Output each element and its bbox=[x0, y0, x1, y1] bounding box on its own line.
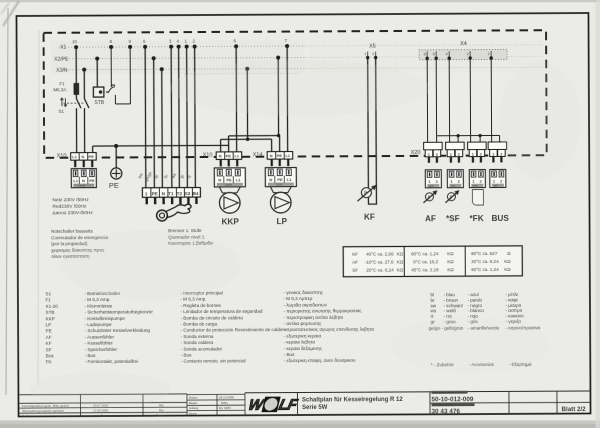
svg-text:- Bus: - Bus bbox=[181, 353, 192, 358]
svg-text:KΩ: KΩ bbox=[447, 251, 454, 256]
svg-text:- Ladepumpe: - Ladepumpe bbox=[85, 322, 113, 327]
svg-text:S3: S3 bbox=[185, 191, 191, 196]
svg-text:- Sonda caldera: - Sonda caldera bbox=[181, 340, 214, 345]
svg-text:M6,3A: M6,3A bbox=[53, 87, 66, 92]
svg-text:L1: L1 bbox=[236, 177, 241, 182]
svg-text:AF: AF bbox=[46, 335, 52, 340]
svg-text:2: 2 bbox=[372, 52, 374, 56]
svg-text:- Bus: - Bus bbox=[85, 353, 96, 358]
svg-text:SF: SF bbox=[46, 347, 52, 352]
svg-text:N: N bbox=[219, 153, 222, 158]
svg-text:- λωριδα ακροδεκτων: - λωριδα ακροδεκτων bbox=[283, 302, 327, 307]
svg-text:Notschalter bauseits: Notschalter bauseits bbox=[51, 229, 93, 234]
svg-text:Schaltplan für Kesselregelung: Schaltplan für Kesselregelung R 12 bbox=[302, 397, 403, 404]
svg-text:STB: STB bbox=[94, 100, 104, 106]
svg-text:30 43 476: 30 43 476 bbox=[432, 408, 461, 415]
svg-text:- Contacto remoto, sin potenci: - Contacto remoto, sin potencial bbox=[181, 358, 246, 363]
svg-text:X5: X5 bbox=[369, 44, 376, 50]
svg-text:- ασπρο: - ασπρο bbox=[505, 308, 522, 313]
svg-text:FK: FK bbox=[46, 359, 53, 364]
svg-text:T2: T2 bbox=[177, 191, 183, 196]
svg-text:-10°C ca. 27,6: -10°C ca. 27,6 bbox=[365, 260, 394, 265]
svg-text:- αντλια φορτωσης: - αντλια φορτωσης bbox=[284, 321, 323, 326]
svg-text:X4: X4 bbox=[460, 41, 467, 47]
svg-text:Sthm: Sthm bbox=[221, 401, 229, 405]
svg-text:AF: AF bbox=[352, 260, 358, 265]
svg-text:AF: AF bbox=[425, 214, 436, 223]
svg-text:LP: LP bbox=[46, 322, 52, 327]
svg-text:- pardo: - pardo bbox=[467, 297, 482, 302]
svg-text:grb: grb bbox=[494, 184, 499, 188]
svg-text:230V: 230V bbox=[276, 182, 283, 186]
svg-text:Δικτυο 230V-/50Hz: Δικτυο 230V-/50Hz bbox=[52, 210, 93, 216]
svg-text:- blanco: - blanco bbox=[467, 308, 484, 313]
svg-text:1: 1 bbox=[488, 52, 490, 56]
svg-text:Teil- Materialnummer: Teil- Materialnummer bbox=[432, 404, 456, 407]
svg-text:20°C ca. 6,24: 20°C ca. 6,24 bbox=[471, 259, 499, 264]
svg-text:L1: L1 bbox=[72, 154, 77, 159]
svg-text:X10: X10 bbox=[57, 153, 67, 159]
svg-text:- negro: - negro bbox=[467, 303, 482, 308]
svg-text:- Fernkontakt, potentialfrei: - Fernkontakt, potentialfrei bbox=[85, 359, 138, 364]
svg-text:KF: KF bbox=[364, 213, 375, 222]
svg-text:- Bus: - Bus bbox=[284, 352, 295, 357]
svg-text:L1: L1 bbox=[234, 153, 239, 158]
svg-text:- Sonda externa: - Sonda externa bbox=[181, 334, 214, 339]
svg-text:Datum: Datum bbox=[101, 413, 111, 417]
svg-text:26.10.2006: 26.10.2006 bbox=[219, 395, 234, 399]
svg-text:B4: B4 bbox=[193, 191, 199, 196]
svg-text:S1: S1 bbox=[45, 291, 51, 296]
svg-text:PE: PE bbox=[277, 153, 283, 158]
svg-text:PE: PE bbox=[88, 154, 94, 159]
svg-text:- Klemmleiste: - Klemmleiste bbox=[84, 303, 112, 308]
svg-text:- Aussenfühler: - Aussenfühler bbox=[85, 334, 115, 339]
svg-text:X10: X10 bbox=[203, 152, 213, 158]
svg-text:- Conductor de protección Reve: - Conductor de protección Revestimiento … bbox=[181, 327, 287, 333]
svg-text:0°C ca. 16,3: 0°C ca. 16,3 bbox=[413, 259, 438, 264]
svg-text:KΩ: KΩ bbox=[397, 267, 404, 272]
svg-text:Anläng: Anläng bbox=[189, 406, 199, 410]
svg-text:PE: PE bbox=[46, 329, 52, 334]
svg-text:- blau: - blau bbox=[443, 292, 455, 297]
svg-text:PE: PE bbox=[226, 153, 232, 158]
svg-text:KΩ: KΩ bbox=[397, 251, 404, 256]
svg-text:KΩ: KΩ bbox=[447, 259, 454, 264]
svg-text:- schwarz: - schwarz bbox=[443, 303, 463, 308]
svg-text:F1: F1 bbox=[45, 298, 51, 303]
svg-text:20°C ca. 6,24: 20°C ca. 6,24 bbox=[366, 268, 394, 273]
svg-text:Norm: Norm bbox=[189, 411, 197, 415]
svg-text:L1: L1 bbox=[285, 153, 290, 158]
svg-text:- Kesselfühler: - Kesselfühler bbox=[85, 341, 114, 346]
svg-text:S1: S1 bbox=[58, 109, 64, 114]
svg-text:Zeichnungsnummer: Zeichnungsnummer bbox=[432, 391, 454, 394]
svg-text:weiß: weiß bbox=[79, 184, 86, 188]
svg-text:- Speicherfühler: - Speicherfühler bbox=[85, 347, 118, 352]
svg-text:80°C ca. 627: 80°C ca. 627 bbox=[471, 251, 498, 256]
svg-text:bl: bl bbox=[430, 292, 434, 297]
svg-text:N: N bbox=[82, 178, 85, 183]
svg-text:2: 2 bbox=[467, 52, 469, 56]
svg-text:sw: sw bbox=[430, 303, 436, 308]
svg-text:- περιοριστης ανωτατης θερμοκρ: - περιοριστης ανωτατης θερμοκρασιας bbox=[283, 308, 362, 313]
svg-text:- M 6,3 Amp.: - M 6,3 Amp. bbox=[180, 297, 206, 302]
svg-text:*SF: *SF bbox=[446, 214, 460, 223]
svg-text:Übersetzung todesch-serbisch: Übersetzung todesch-serbisch bbox=[22, 409, 64, 413]
svg-text:Bearb.: Bearb. bbox=[189, 401, 198, 405]
svg-text:PE: PE bbox=[109, 181, 119, 190]
svg-text:LP: LP bbox=[277, 217, 288, 226]
svg-text:*FK: *FK bbox=[470, 214, 484, 223]
svg-text:40°C ca. 2,66: 40°C ca. 2,66 bbox=[366, 252, 394, 257]
svg-text:- Regleta de bornes: - Regleta de bornes bbox=[180, 303, 221, 308]
svg-text:- μπλε: - μπλε bbox=[505, 292, 518, 297]
svg-text:- κοκκινο: - κοκκινο bbox=[506, 313, 525, 318]
svg-text:X2/PE: X2/PE bbox=[54, 57, 69, 63]
svg-text:KΩ: KΩ bbox=[397, 259, 404, 264]
svg-text:L1: L1 bbox=[73, 178, 78, 183]
svg-text:17.05.2001: 17.05.2001 bbox=[93, 409, 109, 413]
svg-text:- braun: - braun bbox=[443, 298, 458, 303]
svg-text:KF: KF bbox=[46, 341, 52, 346]
svg-text:blu: blu bbox=[451, 184, 455, 188]
svg-text:- προστατευτικος αγωγος επενδυ: - προστατευτικος αγωγος επενδυσης λεβητα bbox=[284, 327, 375, 332]
svg-text:45°C ca. 2,18: 45°C ca. 2,18 bbox=[411, 267, 439, 272]
svg-text:SF: SF bbox=[352, 268, 358, 273]
svg-text:1: 1 bbox=[364, 52, 366, 56]
svg-text:- weiß: - weiß bbox=[443, 308, 456, 313]
svg-text:N: N bbox=[218, 177, 221, 182]
svg-text:ws: ws bbox=[430, 308, 436, 313]
svg-text:gnb: gnb bbox=[429, 184, 434, 188]
svg-text:4: 4 bbox=[446, 52, 448, 56]
svg-text:N: N bbox=[269, 177, 272, 182]
svg-text:T1: T1 bbox=[168, 191, 174, 196]
svg-text:- Μ 6,3 Αμπερ: - Μ 6,3 Αμπερ bbox=[283, 296, 312, 301]
svg-text:X1: X1 bbox=[60, 45, 66, 51]
svg-text:KF: KF bbox=[352, 252, 358, 257]
svg-text:- μαυρο: - μαυρο bbox=[505, 303, 521, 308]
svg-text:PE: PE bbox=[277, 177, 283, 182]
svg-text:- Bomba de carga: - Bomba de carga bbox=[181, 321, 218, 326]
svg-text:6: 6 bbox=[424, 52, 426, 56]
svg-text:- Sonda acumulador: - Sonda acumulador bbox=[181, 346, 223, 351]
svg-text:- azul: - azul bbox=[467, 292, 478, 297]
svg-text:5: 5 bbox=[433, 52, 435, 56]
svg-text:- M 6,3 Amp.: - M 6,3 Amp. bbox=[84, 297, 110, 302]
svg-text:50-10-012-009: 50-10-012-009 bbox=[431, 396, 473, 403]
svg-text:- καφε: - καφε bbox=[505, 297, 518, 302]
svg-text:Serie 5W: Serie 5W bbox=[302, 405, 328, 411]
svg-text:br: br bbox=[430, 298, 435, 303]
svg-text:60°C ca. 1,24: 60°C ca. 1,24 bbox=[471, 267, 499, 272]
svg-text:L1: L1 bbox=[287, 177, 292, 182]
svg-text:PE: PE bbox=[89, 178, 95, 183]
svg-text:230V: 230V bbox=[225, 183, 232, 187]
svg-text:KKP: KKP bbox=[222, 217, 240, 226]
svg-text:- περιστροφικη αντλια λεβητα: - περιστροφικη αντλια λεβητα bbox=[284, 315, 344, 320]
svg-text:PE: PE bbox=[152, 191, 158, 196]
svg-text:KΩ: KΩ bbox=[504, 259, 511, 264]
svg-text:X1-20: X1-20 bbox=[45, 304, 58, 309]
svg-text:Red230V /50Hz: Red230V /50Hz bbox=[52, 204, 86, 210]
svg-text:Netz 230V /50Hz: Netz 230V /50Hz bbox=[52, 197, 89, 203]
svg-text:Datum: Datum bbox=[189, 396, 198, 400]
svg-text:10: 10 bbox=[72, 39, 77, 44]
svg-text:- κεραια λεβητα: - κεραια λεβητα bbox=[284, 340, 316, 345]
svg-text:X14: X14 bbox=[253, 152, 263, 158]
svg-text:X3/N: X3/N bbox=[56, 68, 68, 74]
svg-text:Bus: Bus bbox=[46, 353, 55, 358]
svg-text:EC 3283: EC 3283 bbox=[219, 406, 231, 410]
svg-text:Name: Name bbox=[156, 413, 165, 417]
svg-text:N: N bbox=[270, 153, 273, 158]
svg-text:- γενικος διακοπτης: - γενικος διακοπτης bbox=[283, 290, 323, 295]
svg-text:- Sicherheitstemperaturbegrenz: - Sicherheitstemperaturbegrenzer bbox=[84, 309, 153, 314]
svg-text:F1: F1 bbox=[59, 81, 65, 86]
svg-text:STB: STB bbox=[45, 310, 54, 315]
svg-text:- Schutzleiter Kesselverkleidu: - Schutzleiter Kesselverkleidung bbox=[85, 328, 151, 333]
svg-text:BUS: BUS bbox=[492, 214, 510, 223]
svg-text:KKP: KKP bbox=[46, 316, 55, 321]
svg-text:KΩ: KΩ bbox=[504, 267, 511, 272]
svg-text:Blatt 2/2: Blatt 2/2 bbox=[562, 406, 587, 413]
svg-text:- Bomba de circuito de caldera: - Bomba de circuito de caldera bbox=[181, 315, 244, 320]
svg-text:Hw: Hw bbox=[159, 408, 164, 412]
svg-text:Hw: Hw bbox=[159, 403, 164, 407]
svg-text:N: N bbox=[81, 154, 84, 159]
svg-text:KΩ: KΩ bbox=[447, 267, 454, 272]
svg-text:- Limitador de temperatura de: - Limitador de temperatura de seguridad bbox=[180, 309, 262, 314]
svg-text:60°C ca. 1,24: 60°C ca. 1,24 bbox=[411, 251, 439, 256]
svg-text:X20: X20 bbox=[411, 150, 421, 156]
svg-text:- Kesselkreispumpe: - Kesselkreispumpe bbox=[85, 316, 126, 321]
svg-text:Änderung: Änderung bbox=[22, 414, 36, 418]
svg-text:PE: PE bbox=[226, 177, 232, 182]
